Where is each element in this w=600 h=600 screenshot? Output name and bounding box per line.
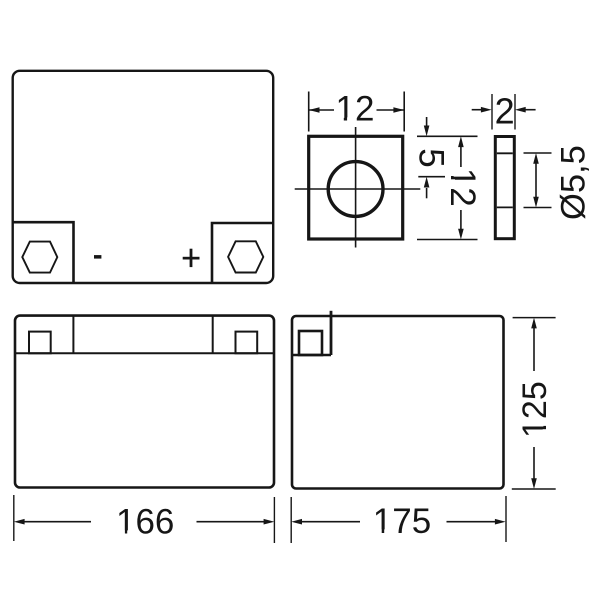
svg-text:12: 12: [336, 90, 375, 129]
svg-text:12: 12: [443, 168, 482, 207]
svg-text:Ø5,5: Ø5,5: [554, 145, 592, 220]
svg-text:125: 125: [516, 381, 554, 438]
svg-text:2: 2: [495, 91, 515, 132]
svg-text:166: 166: [116, 503, 174, 542]
svg-text:5: 5: [412, 148, 451, 167]
svg-text:175: 175: [373, 502, 431, 541]
